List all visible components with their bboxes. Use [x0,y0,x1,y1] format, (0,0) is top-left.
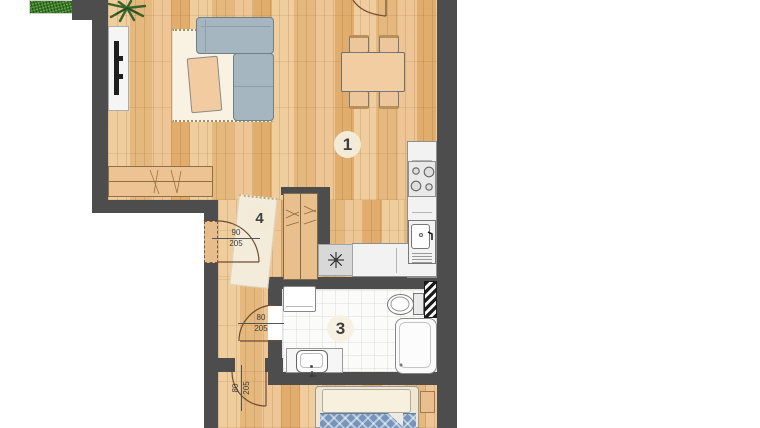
sideboard-decor-lines [150,170,181,194]
stove-burners [411,167,434,191]
real-estate-floorplan-card: 1 3 4 90 205 80 205 80 205 P [0,0,760,428]
room-label-1: 1 [334,131,361,158]
shower-drain [400,364,403,367]
washbasin-tap [309,371,316,376]
utility-asterisk-icon [328,252,344,268]
plant-icon [109,1,145,21]
dim-label-bedroom: 80 205 [231,365,253,411]
dim-label-entrance: 90 205 [212,228,260,248]
room-number: 3 [336,319,345,339]
floor-plan: 1 3 4 90 205 80 205 80 205 [0,0,500,428]
terrace-door-arc [353,0,386,16]
door-swing-arcs [218,0,386,406]
room-number: 4 [255,210,263,227]
door-width: 80 [231,365,242,411]
kitchen-faucet [428,232,432,240]
door-height: 205 [212,239,260,249]
dim-label-bathroom: 80 205 [238,313,284,333]
room-label-3: 3 [327,315,354,342]
door-height: 205 [238,324,284,334]
door-width: 80 [238,313,284,324]
door-height: 205 [242,365,252,411]
room-number: 1 [343,135,352,155]
wardrobe-decor-lines [286,206,316,226]
door-width: 90 [212,228,260,239]
info-panel: Powierzchnia użytkowa 57,50 m² Ogród 20,… [457,0,760,428]
toilet-seat [391,297,409,311]
